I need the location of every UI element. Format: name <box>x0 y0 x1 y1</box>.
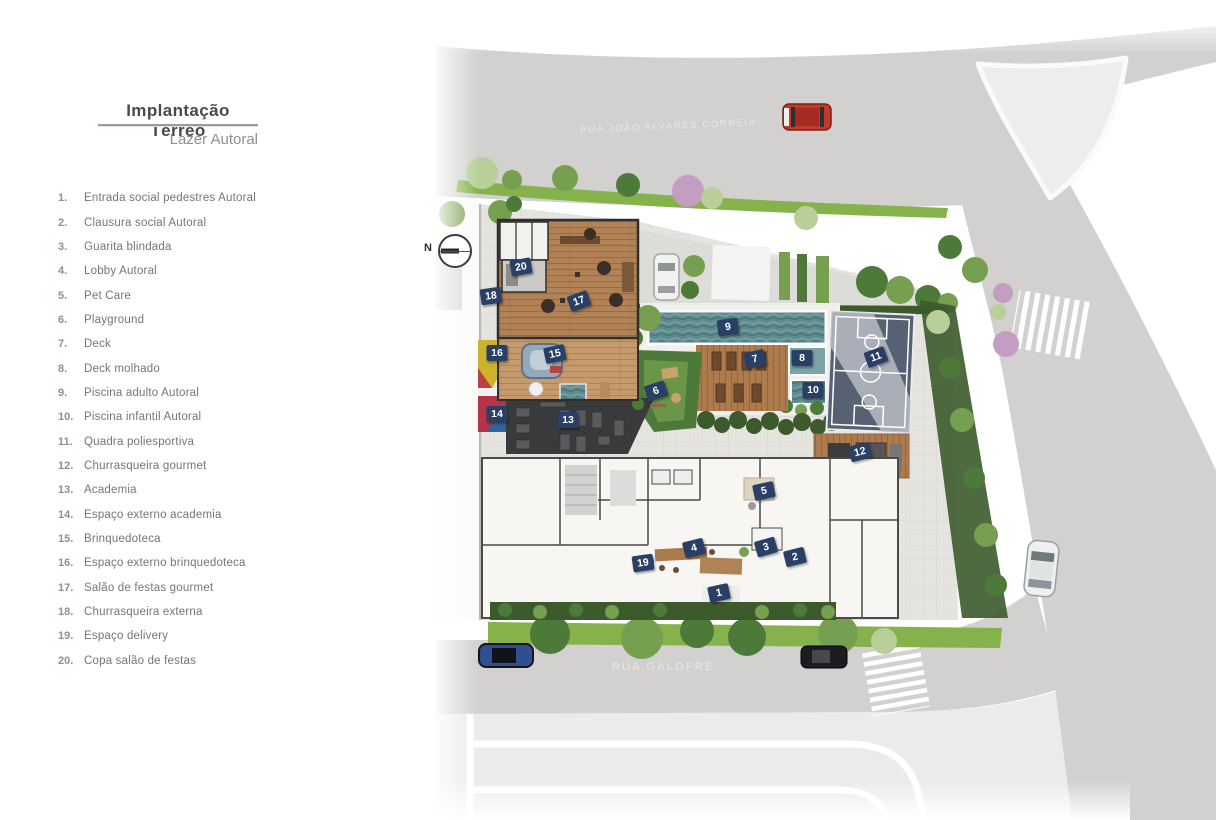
service-strip <box>620 226 958 316</box>
legend-item-number: 11. <box>58 436 78 448</box>
legend-item-11: 11.Quadra poliesportiva <box>58 429 318 453</box>
playroom <box>498 338 638 400</box>
street-label-rua-galofre: RUA GALOFRE <box>612 661 714 673</box>
car-white-top <box>654 254 679 300</box>
legend-item-number: 18. <box>58 606 78 618</box>
legend-item-number: 4. <box>58 265 78 277</box>
legend-divider <box>98 124 258 127</box>
legend-item-7: 7.Deck <box>58 332 318 356</box>
legend-item-18: 18.Churrasqueira externa <box>58 600 318 624</box>
legend-item-2: 2.Clausura social Autoral <box>58 210 318 234</box>
car-red <box>783 104 831 130</box>
legend-item-label: Copa salão de festas <box>84 655 196 667</box>
car-white-right <box>1023 540 1060 598</box>
legend-item-5: 5.Pet Care <box>58 283 318 307</box>
legend-item-3: 3.Guarita blindada <box>58 235 318 259</box>
legend-list: 1.Entrada social pedestres Autoral2.Clau… <box>58 186 318 673</box>
legend-item-number: 2. <box>58 217 78 229</box>
legend-item-number: 1. <box>58 192 78 204</box>
legend-item-number: 19. <box>58 630 78 642</box>
legend-item-label: Piscina infantil Autoral <box>84 411 201 423</box>
legend-item-19: 19.Espaço delivery <box>58 624 318 648</box>
legend-item-12: 12.Churrasqueira gourmet <box>58 454 318 478</box>
legend-item-13: 13.Academia <box>58 478 318 502</box>
tower-plan <box>482 458 898 620</box>
legend-item-label: Churrasqueira gourmet <box>84 460 206 472</box>
screenshot-stage: RUA JOÃO ALVARES CORREIA RUA GARAPEBA RU… <box>0 0 1216 820</box>
legend-item-label: Guarita blindada <box>84 241 172 253</box>
legend-item-number: 8. <box>58 363 78 375</box>
car-blue <box>479 644 533 667</box>
wet-deck <box>789 347 826 375</box>
legend-item-17: 17.Salão de festas gourmet <box>58 576 318 600</box>
north-label: N <box>424 242 432 254</box>
legend-item-6: 6.Playground <box>58 308 318 332</box>
legend-item-label: Brinquedoteca <box>84 533 161 545</box>
legend-item-4: 4.Lobby Autoral <box>58 259 318 283</box>
party-hall <box>498 220 638 338</box>
legend-item-16: 16.Espaço externo brinquedoteca <box>58 551 318 575</box>
adult-pool <box>648 311 826 344</box>
legend-item-label: Academia <box>84 484 137 496</box>
legend-item-number: 5. <box>58 290 78 302</box>
legend-item-number: 20. <box>58 655 78 667</box>
legend-item-label: Entrada social pedestres Autoral <box>84 192 256 204</box>
legend-item-label: Espaço externo academia <box>84 509 222 521</box>
legend-item-number: 17. <box>58 582 78 594</box>
legend-item-number: 14. <box>58 509 78 521</box>
legend-item-number: 10. <box>58 411 78 423</box>
legend-item-label: Espaço delivery <box>84 630 168 642</box>
legend-item-label: Clausura social Autoral <box>84 217 206 229</box>
sports-court <box>826 311 914 433</box>
legend-item-label: Lobby Autoral <box>84 265 157 277</box>
legend-item-number: 15. <box>58 533 78 545</box>
crosswalk-bottom <box>862 643 930 716</box>
legend-item-8: 8.Deck molhado <box>58 356 318 380</box>
legend-item-label: Salão de festas gourmet <box>84 582 213 594</box>
legend-item-label: Piscina adulto Autoral <box>84 387 199 399</box>
legend-item-number: 7. <box>58 338 78 350</box>
legend-item-number: 13. <box>58 484 78 496</box>
legend-item-9: 9.Piscina adulto Autoral <box>58 381 318 405</box>
gym <box>506 398 654 454</box>
kids-pool <box>791 380 826 404</box>
car-black <box>801 646 847 668</box>
legend-item-label: Playground <box>84 314 144 326</box>
legend-item-label: Deck <box>84 338 111 350</box>
legend-item-15: 15.Brinquedoteca <box>58 527 318 551</box>
legend-item-1: 1.Entrada social pedestres Autoral <box>58 186 318 210</box>
legend-item-label: Churrasqueira externa <box>84 606 203 618</box>
legend-item-label: Quadra poliesportiva <box>84 436 194 448</box>
legend-item-20: 20.Copa salão de festas <box>58 649 318 673</box>
page-subtitle: Lazer Autoral <box>98 131 258 148</box>
legend-item-label: Espaço externo brinquedoteca <box>84 557 246 569</box>
legend-item-number: 9. <box>58 387 78 399</box>
legend-item-number: 3. <box>58 241 78 253</box>
legend-item-number: 12. <box>58 460 78 472</box>
legend-item-14: 14.Espaço externo academia <box>58 502 318 526</box>
legend-item-label: Deck molhado <box>84 363 160 375</box>
north-compass-icon <box>438 234 472 268</box>
legend-item-number: 16. <box>58 557 78 569</box>
legend-item-10: 10.Piscina infantil Autoral <box>58 405 318 429</box>
legend-item-label: Pet Care <box>84 290 131 302</box>
legend-item-number: 6. <box>58 314 78 326</box>
